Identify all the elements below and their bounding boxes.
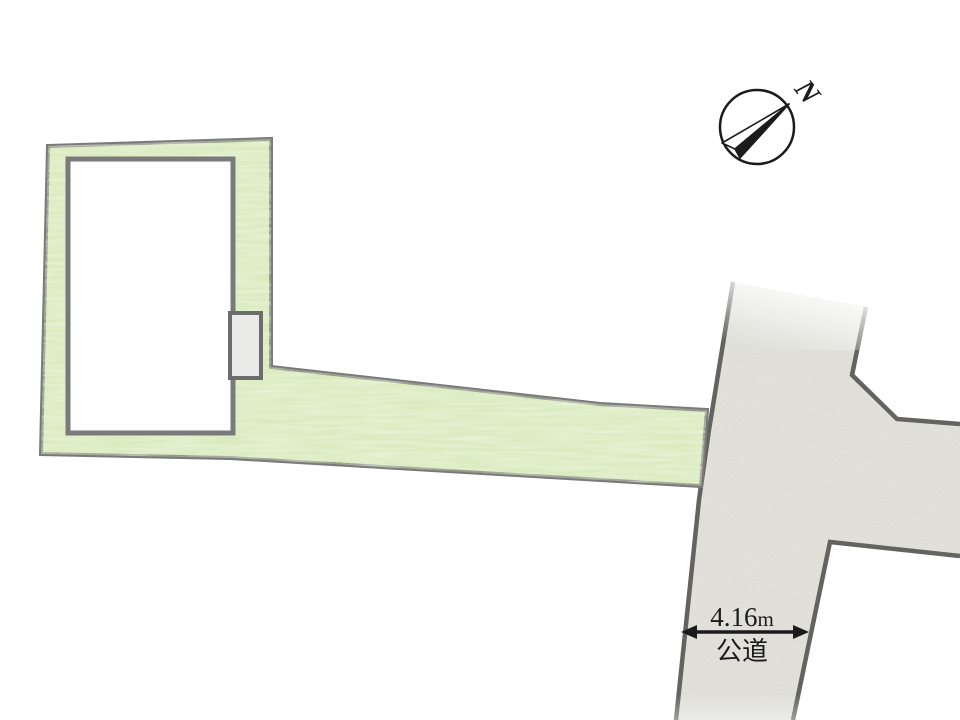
dimension-unit: m bbox=[757, 607, 773, 631]
building-footprint bbox=[68, 159, 233, 433]
entrance-structure bbox=[230, 313, 261, 378]
dimension-number: 4.16 bbox=[710, 602, 757, 632]
dimension-value: 4.16m bbox=[710, 602, 774, 632]
site-plan-diagram: N 4.16m 公道 bbox=[0, 0, 960, 720]
north-compass: N bbox=[720, 73, 827, 164]
compass-needle-light bbox=[722, 104, 789, 149]
site-plan-canvas: N 4.16m 公道 bbox=[0, 0, 960, 720]
north-label: N bbox=[787, 73, 826, 111]
road-name-label: 公道 bbox=[716, 637, 768, 666]
